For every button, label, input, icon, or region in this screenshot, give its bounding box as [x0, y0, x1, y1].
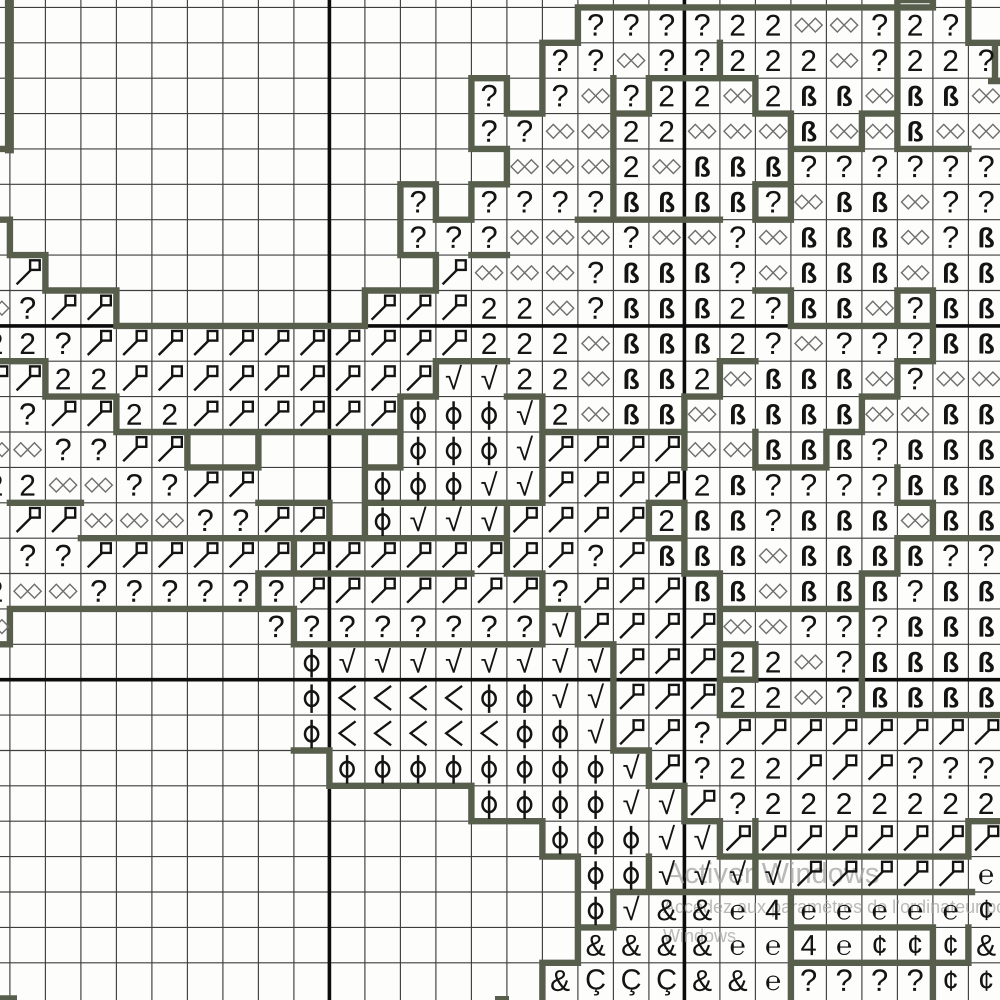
svg-text:Accédez aux paramètres de l’or: Accédez aux paramètres de l’ordinateur p… [663, 897, 1000, 917]
